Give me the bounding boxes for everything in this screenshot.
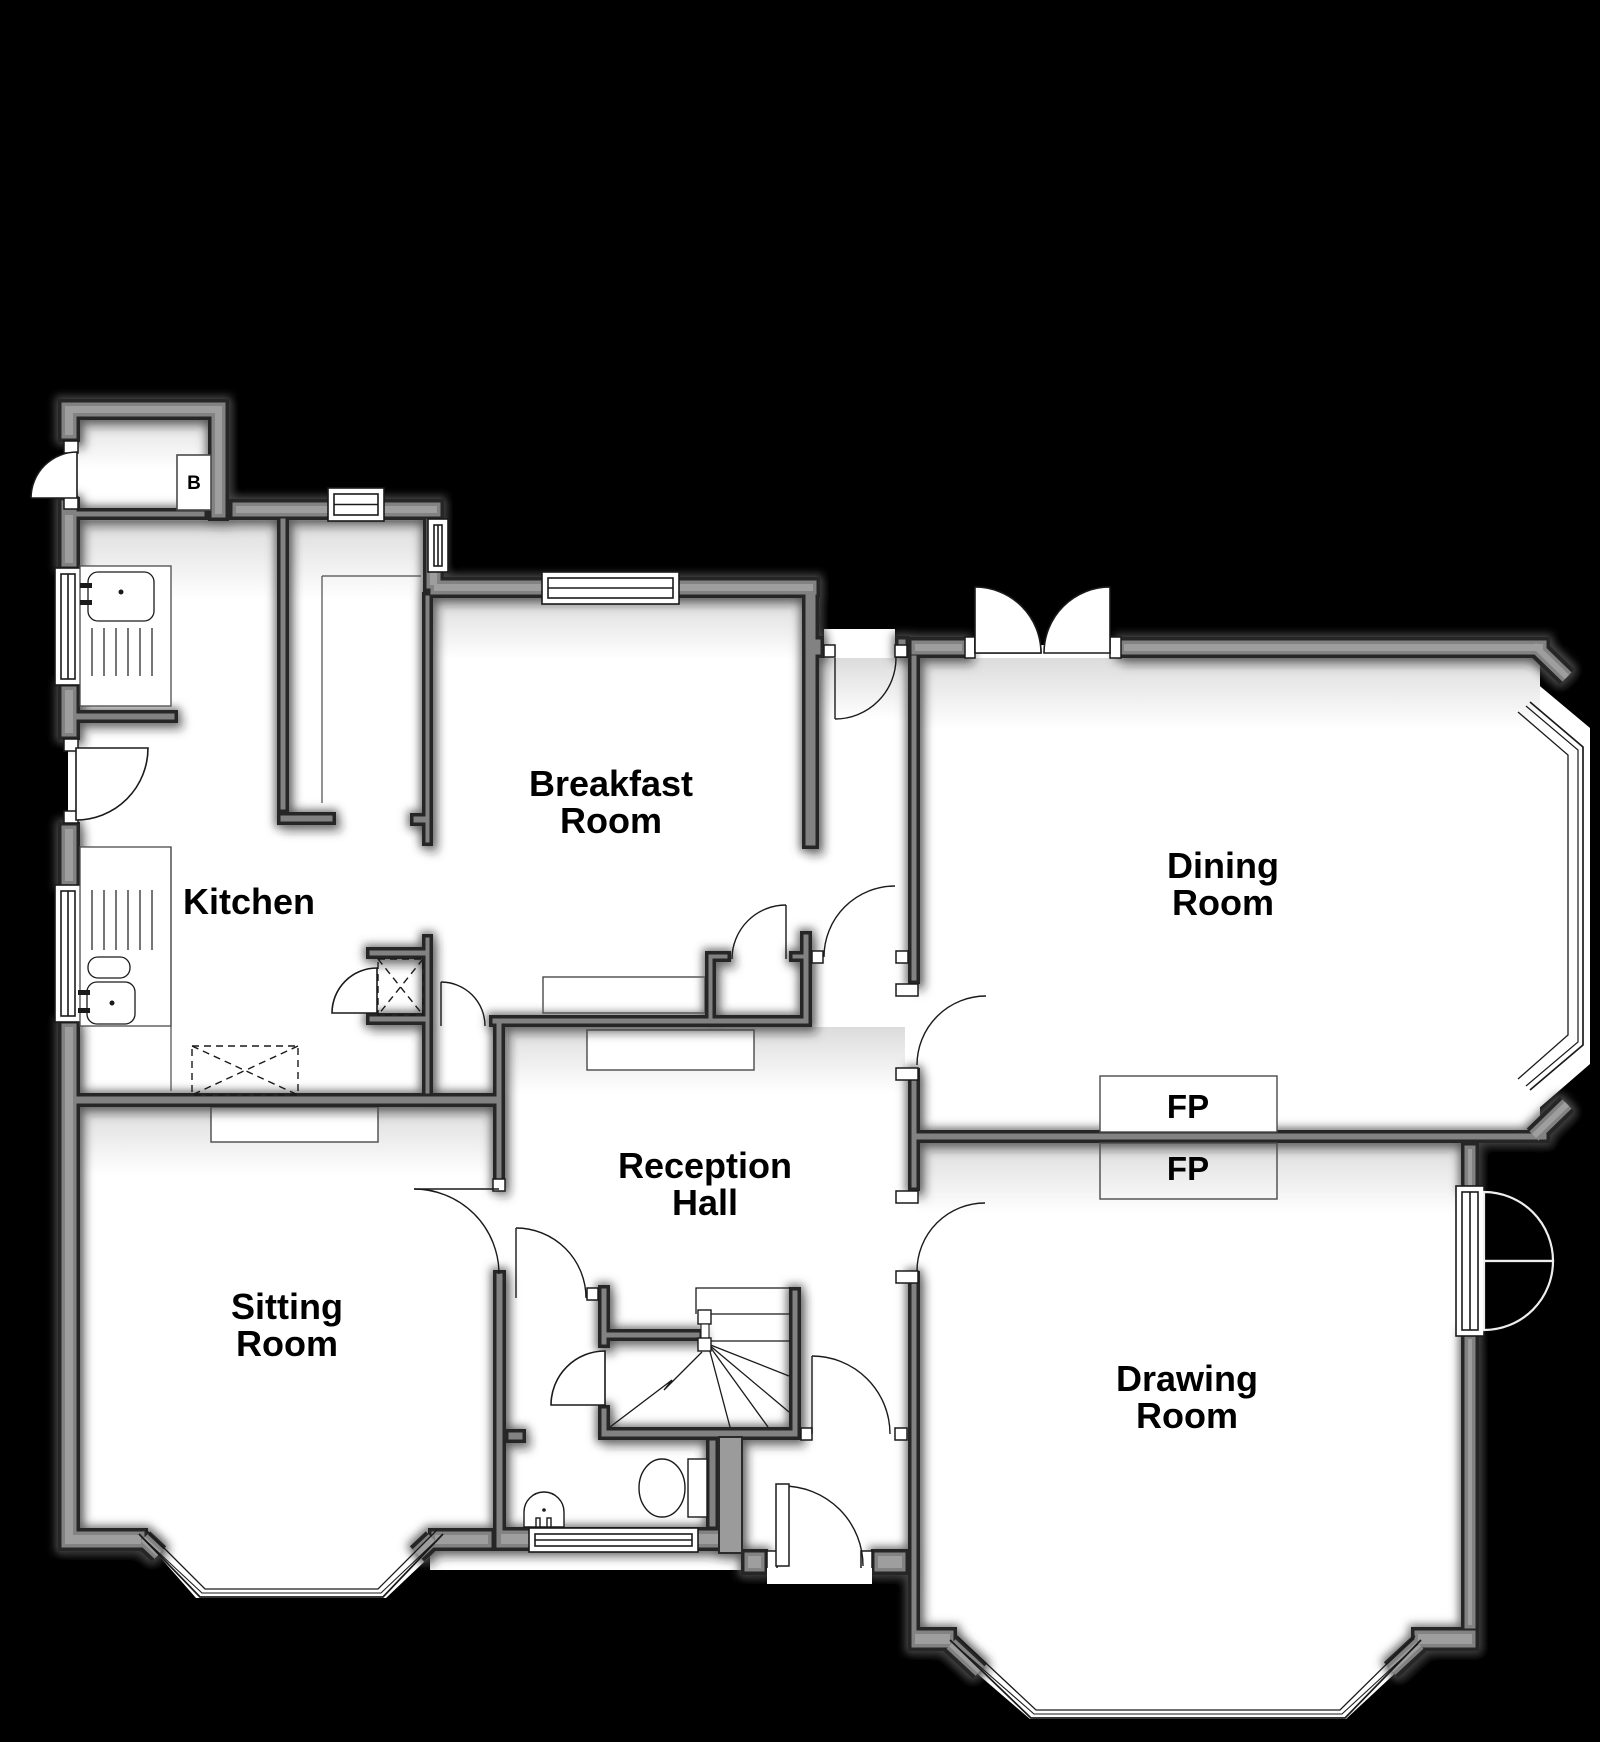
svg-text:FP: FP <box>1167 1088 1209 1125</box>
svg-text:SittingRoom: SittingRoom <box>231 1286 343 1364</box>
svg-text:DiningRoom: DiningRoom <box>1167 845 1279 923</box>
svg-text:Kitchen: Kitchen <box>183 881 315 922</box>
svg-text:B: B <box>187 473 201 494</box>
svg-text:DrawingRoom: DrawingRoom <box>1116 1358 1258 1436</box>
svg-text:FP: FP <box>1167 1150 1209 1187</box>
